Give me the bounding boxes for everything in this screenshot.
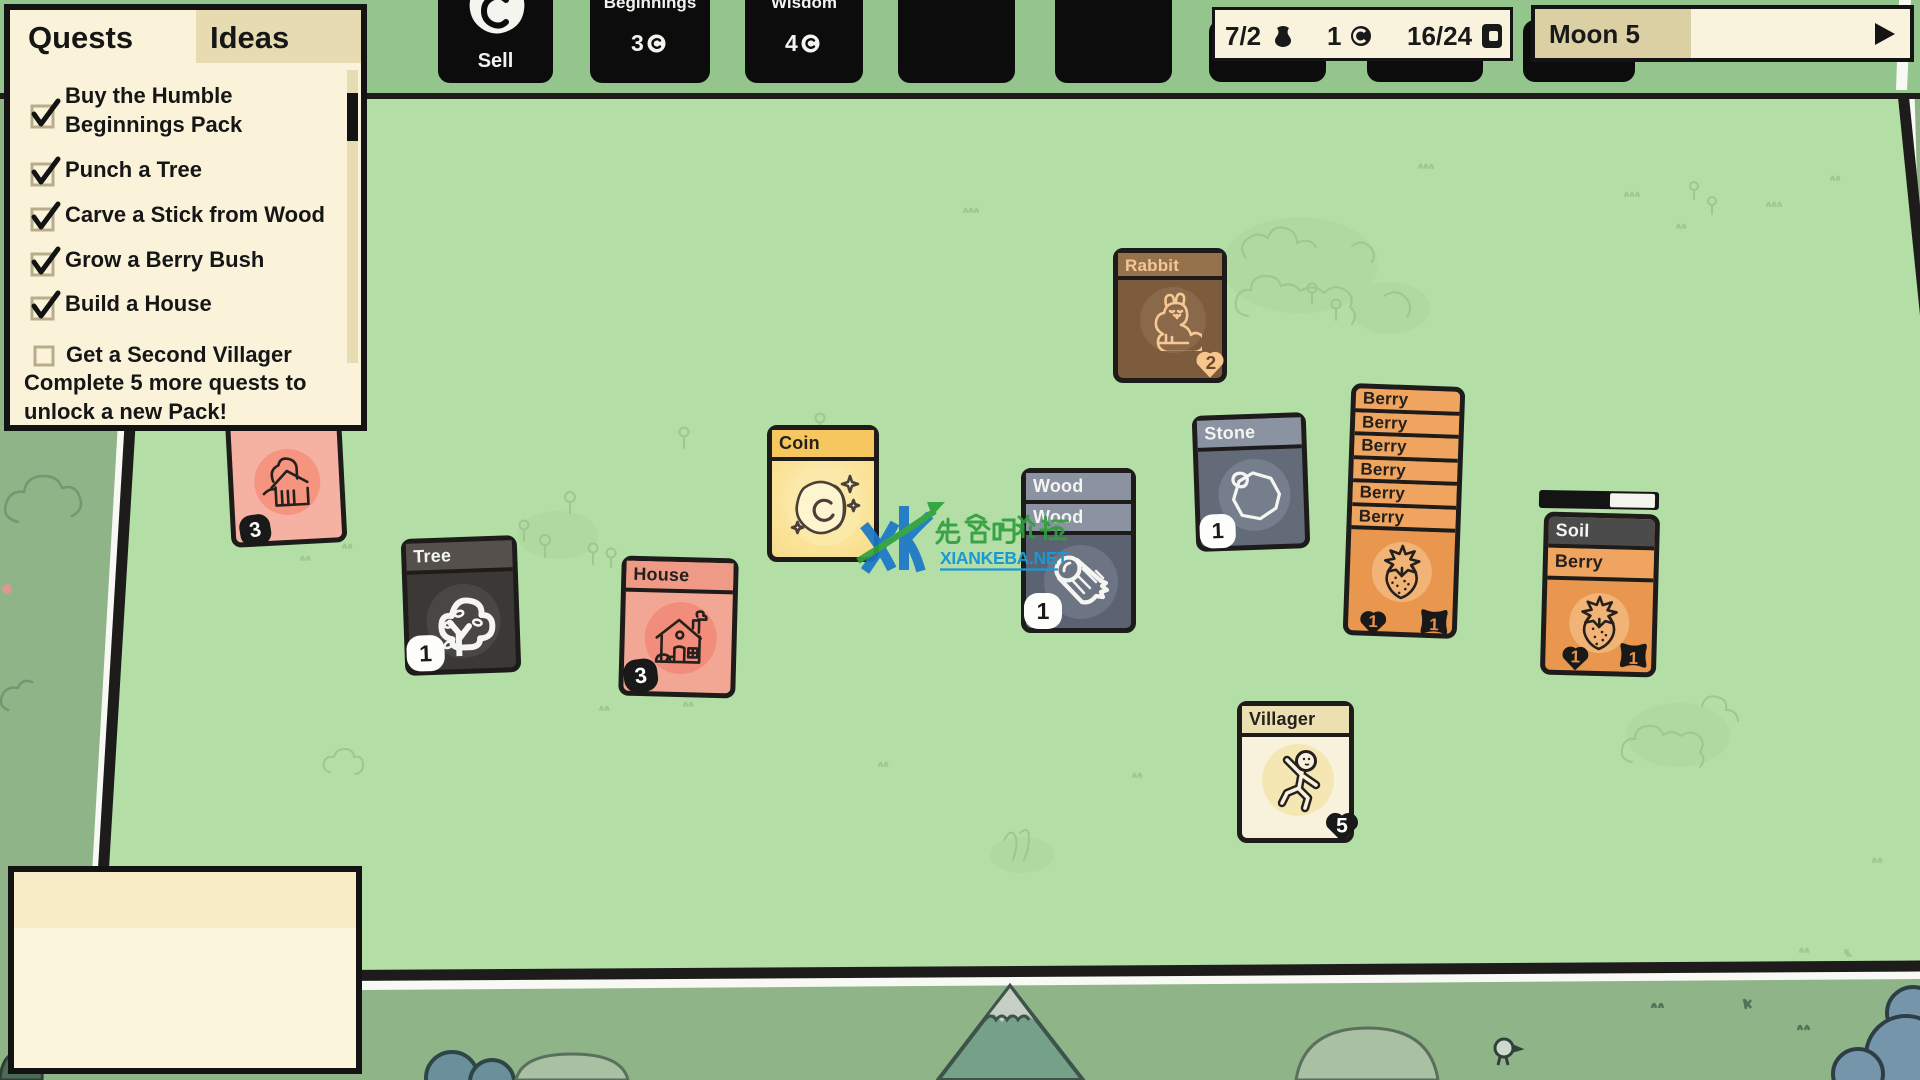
svg-text:XIANKEBA.NET: XIANKEBA.NET <box>940 548 1068 568</box>
svg-text:1: 1 <box>1368 612 1378 631</box>
svg-text:5: 5 <box>1336 814 1348 837</box>
svg-text:1: 1 <box>1570 647 1580 666</box>
svg-text:2: 2 <box>1206 353 1217 374</box>
svg-text:1: 1 <box>1628 649 1638 668</box>
svg-text:1: 1 <box>1429 615 1439 634</box>
